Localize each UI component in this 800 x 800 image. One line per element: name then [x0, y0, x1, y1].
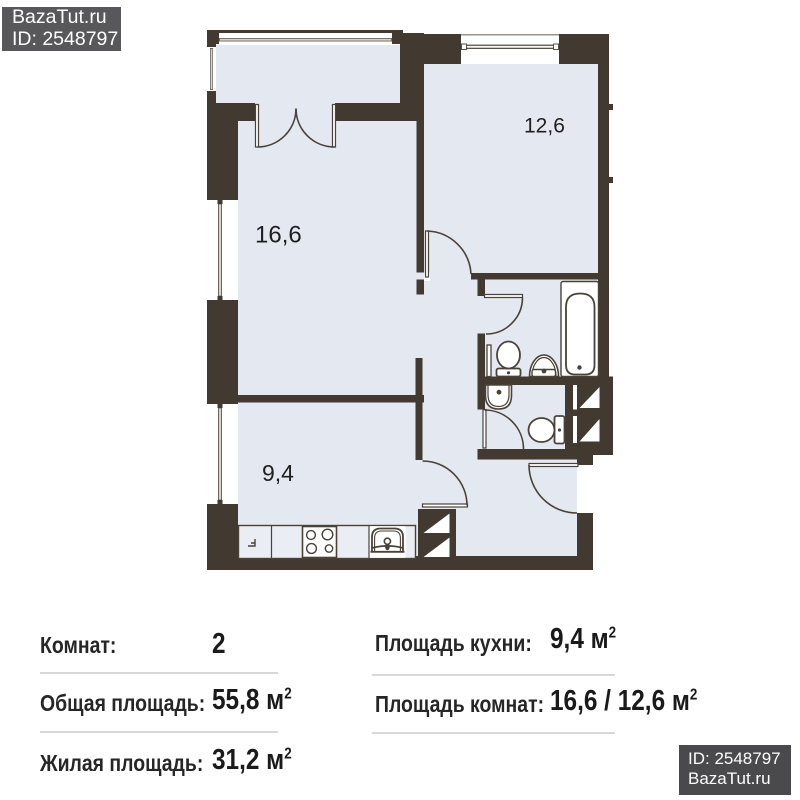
svg-text:16,6: 16,6: [255, 222, 302, 249]
svg-text:12,6: 12,6: [524, 115, 565, 138]
svg-text:9,4: 9,4: [262, 460, 294, 486]
